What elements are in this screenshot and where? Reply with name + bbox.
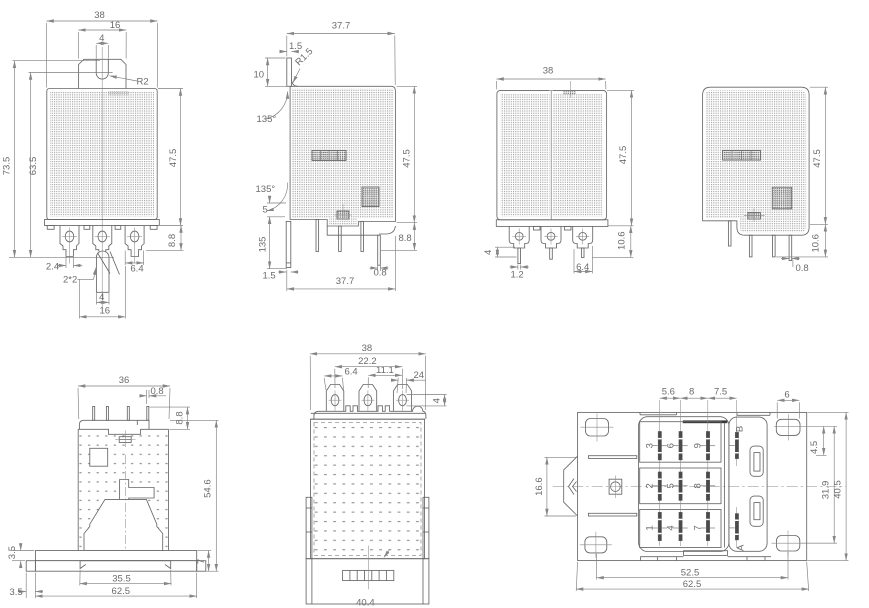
svg-text:36: 36 [119,375,130,386]
svg-text:4: 4 [665,525,676,530]
svg-text:4: 4 [99,292,104,303]
svg-text:1.5: 1.5 [289,41,302,52]
svg-text:6.4: 6.4 [130,264,143,275]
svg-text:16.6: 16.6 [534,477,545,496]
svg-text:8.8: 8.8 [175,411,186,424]
svg-text:63.5: 63.5 [28,157,39,176]
svg-text:31.9: 31.9 [820,481,831,500]
svg-text:10.6: 10.6 [617,231,628,250]
svg-text:62.5: 62.5 [112,586,131,597]
svg-text:4: 4 [432,398,443,403]
svg-text:47.5: 47.5 [812,149,823,168]
svg-text:135°: 135° [257,114,277,125]
svg-text:B: B [735,426,746,432]
svg-text:6.4: 6.4 [345,367,358,378]
svg-text:1: 1 [645,525,656,530]
svg-text:3.5: 3.5 [7,546,18,559]
svg-text:6: 6 [665,443,676,448]
svg-text:16: 16 [100,306,111,317]
svg-text:2.4: 2.4 [46,262,59,273]
svg-text:0.8: 0.8 [374,268,387,279]
svg-text:35.5: 35.5 [112,573,131,584]
svg-text:135: 135 [258,237,269,253]
svg-text:7: 7 [693,525,704,530]
svg-text:73.5: 73.5 [2,157,13,176]
svg-text:8.8: 8.8 [399,233,412,244]
svg-text:38: 38 [543,66,554,77]
svg-text:4: 4 [483,250,494,255]
svg-text:3.5: 3.5 [10,587,23,598]
svg-text:0.8: 0.8 [151,386,164,397]
svg-text:10: 10 [254,70,265,81]
svg-text:8.8: 8.8 [167,234,178,247]
svg-text:16: 16 [110,20,121,31]
svg-text:37.7: 37.7 [336,276,355,287]
svg-text:3: 3 [645,443,656,448]
svg-text:5: 5 [263,205,268,216]
svg-text:0.8: 0.8 [796,263,809,274]
svg-text:1.2: 1.2 [511,270,524,281]
svg-text:38: 38 [362,343,373,354]
svg-text:24: 24 [414,370,425,381]
svg-text:135°: 135° [256,184,276,195]
svg-text:A: A [735,544,746,551]
svg-text:8: 8 [689,386,694,397]
svg-text:52.5: 52.5 [681,568,700,579]
svg-text:47.5: 47.5 [618,146,629,165]
svg-text:1.5: 1.5 [263,270,276,281]
svg-text:47.5: 47.5 [168,149,179,168]
svg-text:R2: R2 [137,77,149,88]
svg-text:7: 7 [196,559,207,564]
svg-text:6.4: 6.4 [576,262,589,273]
svg-text:10.6: 10.6 [811,234,822,253]
svg-text:38: 38 [94,10,105,21]
svg-text:9: 9 [693,443,704,448]
svg-text:4.5: 4.5 [809,441,820,454]
svg-text:6: 6 [784,390,789,401]
svg-text:22.2: 22.2 [358,356,377,367]
svg-text:37.7: 37.7 [332,21,351,32]
svg-text:7.5: 7.5 [714,387,727,398]
svg-text:4: 4 [99,33,104,44]
svg-text:11.1: 11.1 [376,365,394,376]
svg-text:2: 2 [645,483,656,488]
svg-text:8: 8 [693,483,704,488]
svg-text:2*2: 2*2 [63,275,77,286]
svg-text:5.6: 5.6 [662,387,675,398]
svg-text:62.5: 62.5 [683,579,702,590]
svg-text:40.4: 40.4 [356,598,375,608]
svg-text:5: 5 [665,483,676,488]
svg-text:54.6: 54.6 [203,479,214,498]
svg-text:40.5: 40.5 [832,480,843,499]
svg-text:47.5: 47.5 [402,149,413,168]
